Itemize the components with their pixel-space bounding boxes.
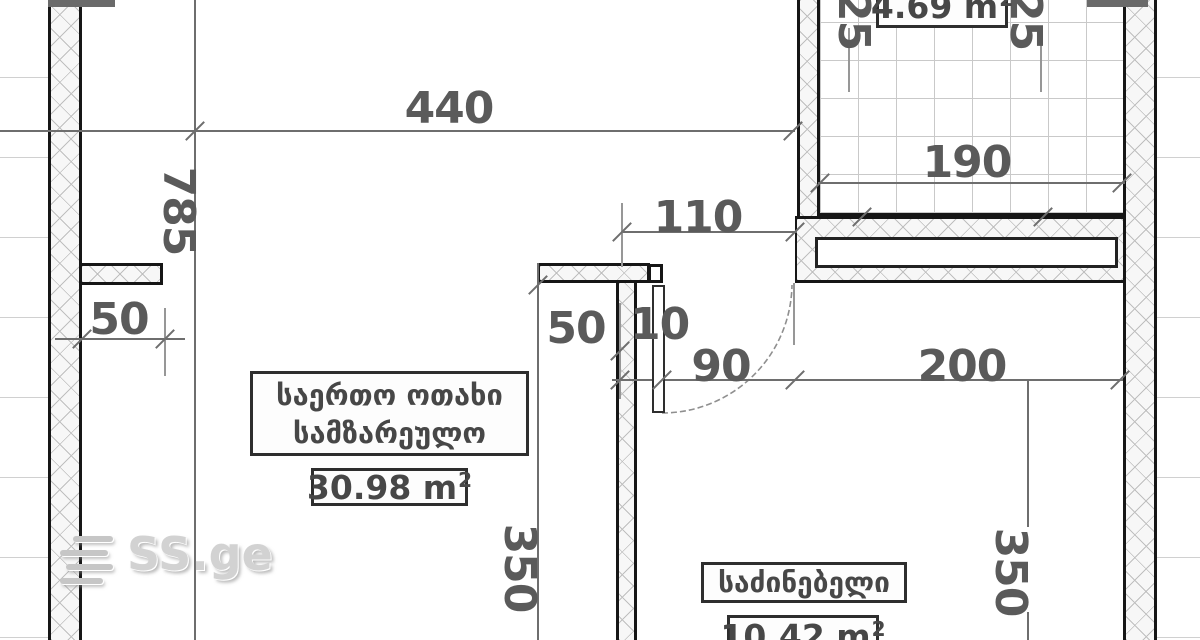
bedroom-area: 10.42 m2 bbox=[727, 615, 879, 640]
top-right-cap bbox=[1087, 0, 1148, 7]
wall-right-outer bbox=[1123, 0, 1157, 640]
wall-left-stub bbox=[82, 263, 163, 285]
top-left-cap bbox=[48, 0, 115, 7]
superscript: 2 bbox=[999, 0, 1013, 11]
dim-440: 440 bbox=[394, 87, 504, 131]
living-room-label: საერთო ოთახი სამზარეულო bbox=[250, 371, 529, 456]
grid-line bbox=[1157, 397, 1200, 398]
wall-window-strip bbox=[795, 216, 1123, 283]
dim-190: 190 bbox=[912, 141, 1022, 185]
door-jamb bbox=[648, 264, 663, 283]
grid-line bbox=[0, 397, 48, 398]
grid-line bbox=[1157, 637, 1200, 638]
watermark: SS.ge bbox=[60, 531, 273, 584]
dim-785: 785 bbox=[156, 156, 200, 266]
grid-line bbox=[0, 637, 48, 638]
dim-350-left: 350 bbox=[497, 513, 541, 623]
grid-line bbox=[0, 557, 48, 558]
bedroom-name: საძინებელი bbox=[718, 564, 890, 602]
grid-line bbox=[0, 157, 48, 158]
dim-10: 10 bbox=[630, 303, 686, 347]
grid-line bbox=[1157, 157, 1200, 158]
dim-200: 200 bbox=[907, 345, 1017, 389]
dim-350-right: 350 bbox=[988, 517, 1032, 627]
grid-line bbox=[0, 317, 48, 318]
living-room-name-line2: სამზარეულო bbox=[293, 414, 486, 452]
grid-line bbox=[0, 237, 48, 238]
living-room-name-line1: საერთო ოთახი bbox=[276, 376, 503, 414]
dim-25-left: 25 bbox=[831, 0, 875, 47]
dim-line-350-right-upper bbox=[1027, 381, 1029, 527]
grid-line bbox=[1157, 477, 1200, 478]
extension-line bbox=[621, 203, 623, 267]
grid-line bbox=[1157, 557, 1200, 558]
window-sill bbox=[815, 237, 1118, 268]
grid-line bbox=[0, 477, 48, 478]
bedroom-label: საძინებელი bbox=[701, 562, 907, 603]
grid-line bbox=[1157, 77, 1200, 78]
living-room-area: 30.98 m2 bbox=[311, 468, 468, 506]
extension-line bbox=[793, 283, 795, 345]
extension-line bbox=[164, 308, 166, 376]
wall-balcony-left bbox=[797, 0, 820, 236]
superscript: 2 bbox=[458, 468, 472, 492]
dim-110: 110 bbox=[643, 196, 753, 240]
balcony-area: 4.69 m2 bbox=[876, 0, 1008, 28]
floor-plan: 440 785 110 50 50 10 90 200 190 25 25 35… bbox=[0, 0, 1200, 640]
ss-logo-icon bbox=[60, 536, 113, 584]
grid-line bbox=[1157, 317, 1200, 318]
superscript: 2 bbox=[872, 617, 886, 640]
grid-line bbox=[1157, 237, 1200, 238]
dim-50-left: 50 bbox=[89, 298, 149, 342]
dim-50-mid: 50 bbox=[546, 307, 606, 351]
watermark-text: SS.ge bbox=[127, 531, 273, 577]
dim-90: 90 bbox=[686, 345, 756, 389]
wall-mid-horizontal bbox=[537, 263, 650, 283]
grid-line bbox=[0, 77, 48, 78]
